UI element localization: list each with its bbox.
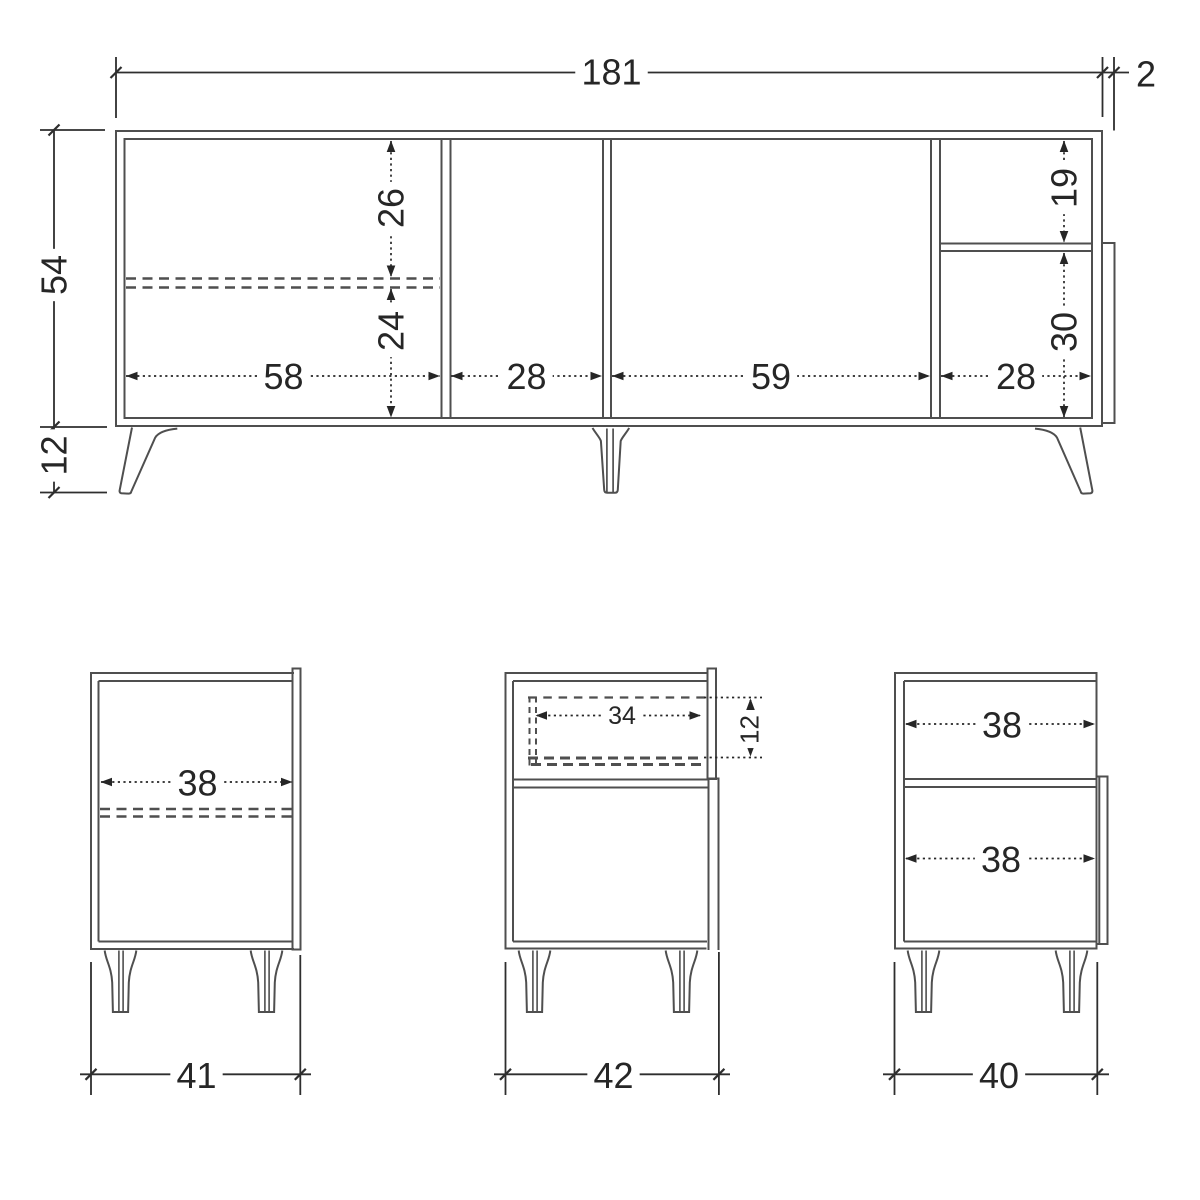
svg-text:42: 42 — [593, 1055, 633, 1096]
svg-text:38: 38 — [982, 705, 1022, 746]
svg-text:28: 28 — [506, 356, 546, 397]
svg-text:40: 40 — [979, 1055, 1019, 1096]
svg-text:28: 28 — [996, 356, 1036, 397]
svg-text:19: 19 — [1044, 168, 1085, 208]
svg-text:26: 26 — [371, 188, 412, 228]
svg-text:38: 38 — [981, 839, 1021, 880]
svg-text:54: 54 — [34, 255, 75, 295]
svg-text:12: 12 — [735, 715, 765, 744]
svg-text:12: 12 — [34, 435, 75, 475]
svg-text:2: 2 — [1136, 54, 1156, 95]
svg-text:30: 30 — [1044, 312, 1085, 352]
svg-text:41: 41 — [176, 1055, 216, 1096]
svg-text:24: 24 — [371, 311, 412, 351]
svg-text:58: 58 — [263, 356, 303, 397]
svg-text:38: 38 — [177, 763, 217, 804]
svg-text:59: 59 — [751, 356, 791, 397]
svg-text:34: 34 — [608, 702, 636, 730]
svg-text:181: 181 — [581, 52, 641, 93]
